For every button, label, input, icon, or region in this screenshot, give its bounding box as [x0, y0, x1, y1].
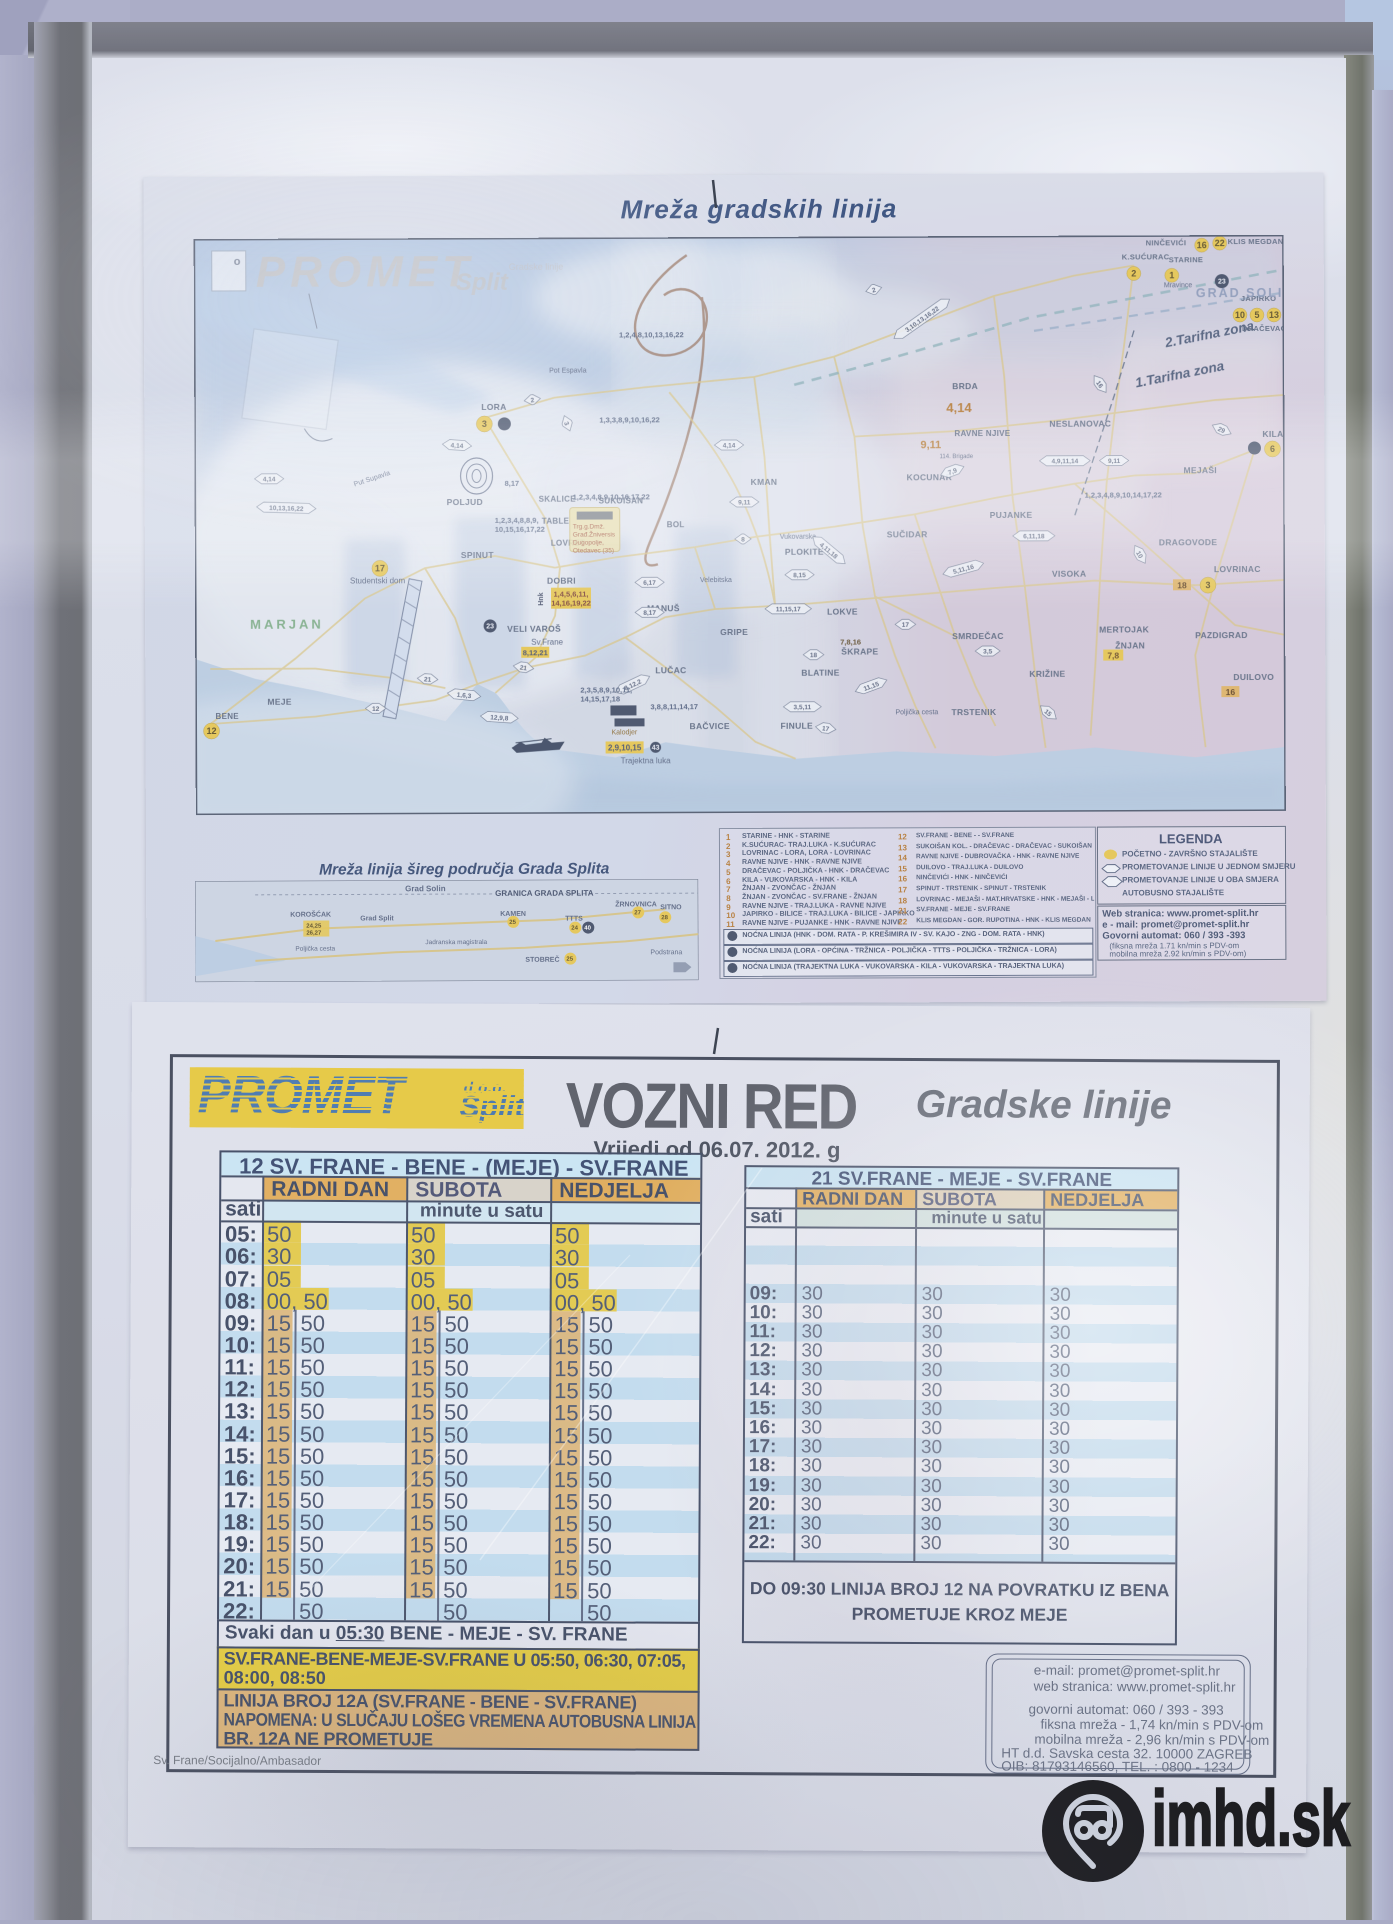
svg-text:imhd.sk: imhd.sk [1152, 1778, 1350, 1862]
